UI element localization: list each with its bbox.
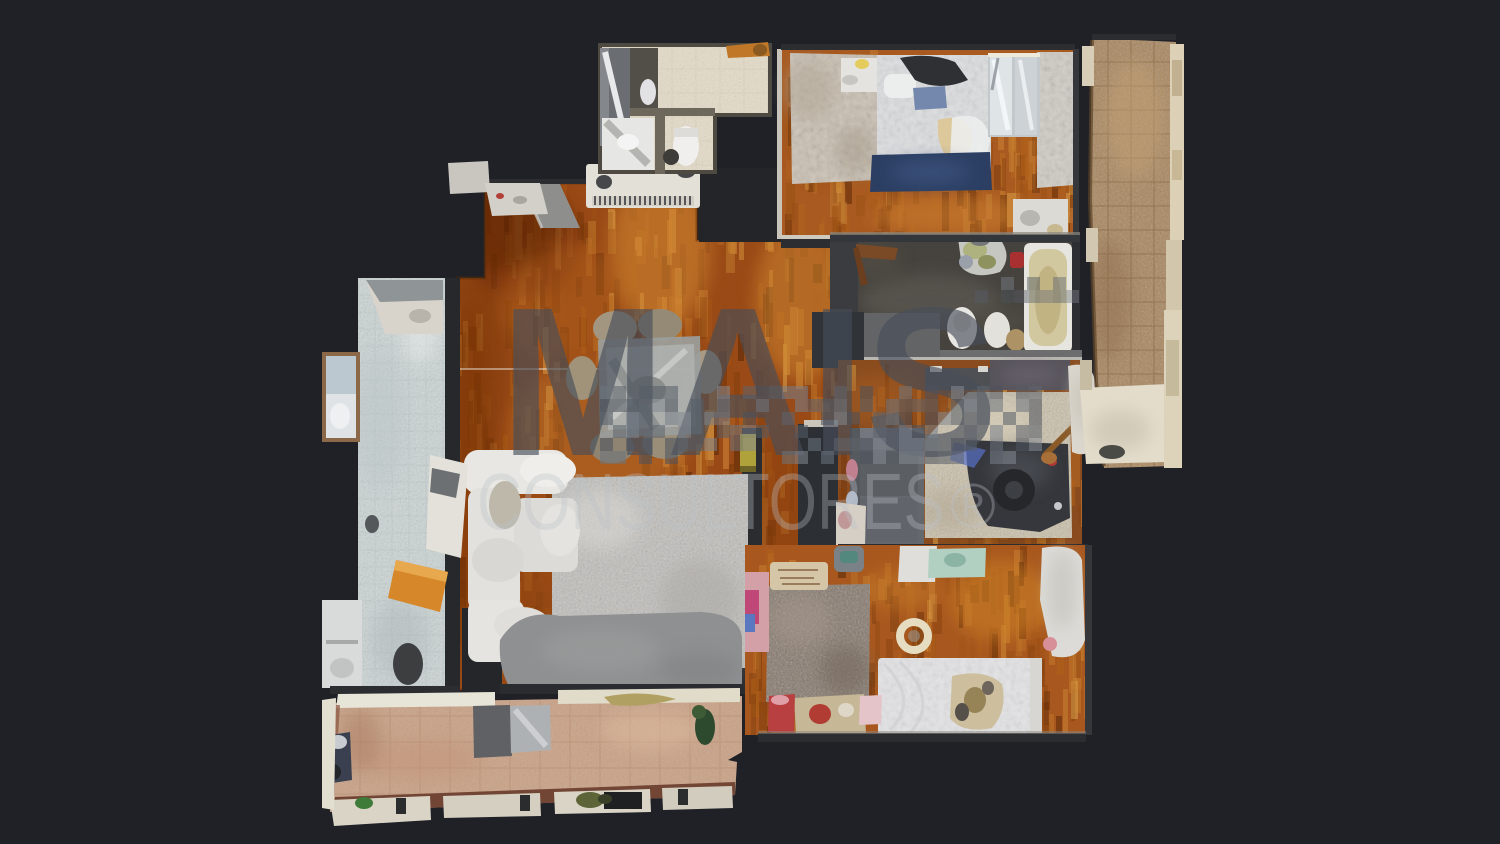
- svg-text:®: ®: [950, 472, 996, 541]
- svg-text:CONSULTORES: CONSULTORES: [477, 457, 945, 546]
